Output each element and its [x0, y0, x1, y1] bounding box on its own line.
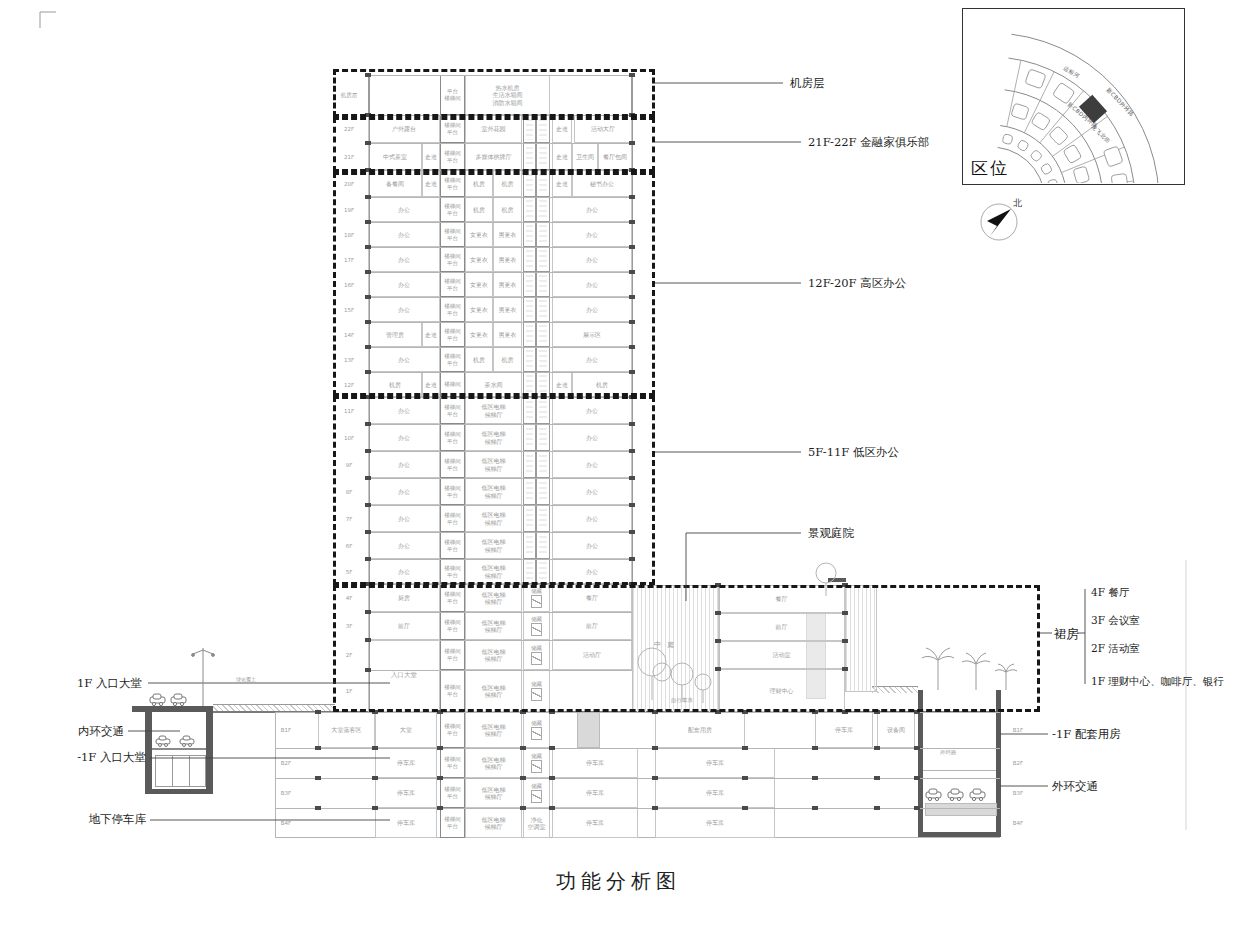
column-tick — [629, 245, 635, 249]
room-cell: 楼梯间 平台 — [440, 297, 465, 322]
room-cell: 走道 — [552, 115, 572, 143]
room-cell: 办公 — [552, 451, 632, 478]
floor-slab-line — [368, 222, 632, 223]
floor-slab-line — [368, 75, 632, 76]
column-tick — [629, 582, 635, 586]
floor-slab-line — [368, 372, 632, 373]
room-cell — [523, 451, 536, 478]
floor-label: 18F — [334, 222, 364, 247]
column-tick — [372, 776, 378, 780]
column-tick — [365, 320, 371, 324]
column-tick — [365, 370, 371, 374]
floor-label: 8F — [334, 478, 364, 505]
room-cell: 低区电梯 候梯厅 — [465, 478, 522, 505]
door-symbol — [531, 760, 542, 773]
room-cell — [523, 322, 536, 347]
road-label: 新CBD外环路 — [1105, 87, 1135, 118]
room-cell: 平台 楼梯间 — [440, 75, 465, 115]
room-cell: 低区电梯 候梯厅 — [465, 397, 522, 424]
outer-ring-bottom — [918, 832, 1001, 837]
inner-ring-right-wall — [206, 712, 213, 794]
room-cell — [523, 272, 536, 297]
room-cell: 停车库 — [552, 748, 638, 778]
floor-slab-line — [368, 478, 632, 479]
room-cell: 楼梯间 平台 — [440, 778, 465, 808]
column-tick — [365, 395, 371, 399]
room-cell: 楼梯间 平台 — [440, 451, 465, 478]
room-cell: 卫生间 — [572, 143, 598, 170]
room-cell: 展示区 — [552, 322, 632, 347]
podium-room: 餐厅 — [718, 585, 845, 613]
floor-label: 13F — [334, 347, 364, 372]
room-cell: 低区电梯 候梯厅 — [465, 505, 522, 532]
room-cell — [523, 532, 536, 559]
room-cell: 储藏 — [523, 640, 550, 670]
room-cell: 走道 — [422, 322, 440, 347]
podium-room: 理财中心 — [718, 669, 845, 712]
column-tick — [372, 710, 378, 714]
room-cell: 餐厅包间 — [598, 143, 632, 170]
column-tick — [629, 345, 635, 349]
column-tick — [629, 530, 635, 534]
map-plot — [1111, 173, 1128, 183]
floor-label: 11F — [334, 397, 364, 424]
annotation-machine-floor: 机房层 — [790, 76, 825, 91]
room-cell: 楼梯间 平台 — [440, 748, 465, 778]
room-cell: 前厅 — [368, 612, 440, 640]
inner-ring-bottom — [145, 789, 213, 794]
column-tick — [629, 168, 635, 172]
column-tick — [914, 710, 920, 714]
room-cell: 女更衣 — [465, 272, 493, 297]
annotation-landscape-courtyard: 景观庭院 — [808, 526, 854, 541]
room-cell: 停车库 — [552, 808, 638, 838]
page-title: 功能分析图 — [556, 868, 681, 895]
column-tick — [365, 668, 371, 672]
room-cell: 茶水间 — [465, 372, 522, 397]
column-tick — [315, 806, 321, 810]
room-cell: 楼梯间 平台 — [440, 397, 465, 424]
room-cell: 男更衣 — [493, 322, 522, 347]
room-cell: 多媒体棋牌厅 — [465, 143, 522, 170]
column-tick — [365, 476, 371, 480]
annotation-outer-ring: 外环交通 — [1052, 779, 1098, 794]
column-tick — [629, 557, 635, 561]
room-cell: 男更衣 — [493, 222, 522, 247]
room-cell: 楼梯间 平台 — [440, 222, 465, 247]
column-tick — [715, 667, 721, 671]
floor-slab-line — [368, 297, 632, 298]
ground-hatch-right — [872, 686, 918, 693]
column-tick — [629, 422, 635, 426]
room-cell: 走道 — [422, 170, 440, 197]
room-cell: 楼梯间 平台 — [440, 808, 465, 838]
room-cell: 热水机房 生活水箱间 消防水箱间 — [465, 75, 550, 115]
column-tick — [812, 776, 818, 780]
column-tick — [742, 776, 748, 780]
entrance-lobby: 入口大堂 — [368, 640, 440, 712]
column-tick — [715, 583, 721, 587]
room-cell — [523, 424, 536, 451]
map-plot — [1073, 166, 1090, 183]
column-tick — [315, 776, 321, 780]
floor-slab-line — [368, 559, 632, 560]
room-cell: 办公 — [552, 532, 632, 559]
column-tick — [520, 710, 526, 714]
room-cell — [523, 222, 536, 247]
annotation-b1-support: -1F 配套用房 — [1052, 727, 1121, 742]
room-cell — [536, 347, 550, 372]
column-tick — [842, 639, 848, 643]
floor-slab-line — [368, 197, 632, 198]
column-tick — [629, 449, 635, 453]
column-tick — [629, 113, 635, 117]
room-cell: 楼梯间 平台 — [440, 712, 465, 748]
floor-slab-line — [368, 424, 632, 425]
room-cell: 办公 — [552, 505, 632, 532]
column-tick — [629, 370, 635, 374]
room-cell: 中式茶室 — [368, 143, 422, 170]
map-plot — [1025, 69, 1046, 89]
room-cell: 楼梯间 平台 — [440, 197, 465, 222]
drawing-label: 自行车库 — [671, 697, 693, 704]
room-cell: 办公 — [368, 347, 440, 372]
floor-label: B4F — [270, 808, 302, 838]
room-cell: 秘书办公 — [572, 170, 632, 197]
room-cell: 楼梯间 — [440, 372, 465, 397]
map-plot — [1031, 112, 1051, 131]
column-tick — [715, 639, 721, 643]
floor-label: B2F — [270, 748, 302, 778]
basement-slab-line — [275, 808, 1000, 809]
column-tick — [842, 611, 848, 615]
room-cell: 楼梯间 平台 — [440, 115, 465, 143]
room-cell — [536, 143, 550, 170]
room-cell: 楼梯间 平台 — [440, 559, 465, 584]
annotation-podium-2f: 2F 活动室 — [1091, 642, 1140, 656]
room-cell: 办公 — [552, 478, 632, 505]
room-cell: 低区电梯 候梯厅 — [465, 559, 522, 584]
room-cell: 停车库 — [815, 712, 873, 748]
column-tick — [437, 710, 443, 714]
door-symbol — [531, 595, 542, 608]
floor-label: B1F — [1002, 712, 1034, 748]
column-tick — [520, 746, 526, 750]
map-plot — [1017, 139, 1029, 151]
column-tick — [629, 195, 635, 199]
basement-slab-line — [275, 778, 1000, 779]
floor-slab-line — [368, 451, 632, 452]
room-cell: 楼梯间 平台 — [440, 584, 465, 612]
room-cell: 大堂落客区 — [318, 712, 375, 748]
roof-railing — [828, 578, 846, 582]
room-cell: 停车库 — [375, 808, 437, 838]
column-tick — [842, 583, 848, 587]
room-cell: 男更衣 — [493, 247, 522, 272]
floor-slab-line — [368, 143, 632, 144]
room-cell: 楼梯间 平台 — [440, 670, 465, 712]
room-cell — [536, 170, 550, 197]
column-tick — [365, 220, 371, 224]
room-cell: 低区电梯 候梯厅 — [465, 532, 522, 559]
annotation-podium: 裙房 — [1054, 626, 1079, 643]
column-tick — [812, 746, 818, 750]
room-cell: 低区电梯 候梯厅 — [465, 451, 522, 478]
column-tick — [365, 195, 371, 199]
map-plot — [1011, 103, 1029, 120]
room-cell — [536, 297, 550, 322]
room-cell: 女更衣 — [465, 297, 493, 322]
inner-ring-left-wall — [145, 712, 152, 794]
room-cell — [523, 115, 536, 143]
column-tick — [437, 746, 443, 750]
column-tick — [715, 611, 721, 615]
drawing-label: 外环路 — [940, 749, 957, 756]
room-cell — [523, 559, 536, 584]
room-cell: 备餐间 — [368, 170, 422, 197]
room-cell: 楼梯间 平台 — [440, 640, 465, 670]
room-cell: 机房 — [572, 372, 632, 397]
column-tick — [437, 776, 443, 780]
room-cell: 机房 — [465, 347, 493, 372]
column-tick — [629, 476, 635, 480]
room-cell — [536, 397, 550, 424]
basement-slab-line — [275, 712, 1000, 713]
column-tick — [629, 320, 635, 324]
column-tick — [742, 746, 748, 750]
door-symbol — [531, 652, 542, 665]
room-cell: 前厅 — [552, 612, 632, 640]
room-cell: 办公 — [368, 397, 440, 424]
floor-slab-line — [368, 532, 632, 533]
floor-label: 1F — [334, 670, 364, 712]
column-tick — [549, 806, 555, 810]
room-cell: 餐厅 — [552, 584, 632, 612]
floor-slab-line — [368, 347, 632, 348]
column-tick — [365, 557, 371, 561]
annotation-low-office: 5F-11F 低区办公 — [808, 445, 899, 460]
floor-label: 机房层 — [334, 75, 364, 115]
room-cell: 楼梯间 平台 — [440, 478, 465, 505]
floor-label: 22F — [334, 115, 364, 143]
room-cell — [536, 532, 550, 559]
floor-label: 17F — [334, 247, 364, 272]
room-cell: 户外露台 — [368, 115, 440, 143]
podium-room: 活动室 — [718, 641, 845, 669]
room-cell: 活动厅 — [552, 640, 632, 670]
room-cell: 楼梯间 平台 — [440, 272, 465, 297]
column-tick — [365, 345, 371, 349]
room-cell — [523, 372, 536, 397]
room-cell: 停车库 — [375, 748, 437, 778]
map-plot — [1052, 82, 1074, 104]
room-cell: 低区电梯 候梯厅 — [465, 584, 522, 612]
floor-label: 6F — [334, 532, 364, 559]
annotation-entry-b1: -1F 入口大堂 — [77, 750, 146, 765]
column-tick — [372, 746, 378, 750]
floor-label: 12F — [334, 372, 364, 397]
room-cell: 楼梯间 平台 — [440, 347, 465, 372]
room-cell: 低区电梯 候梯厅 — [465, 670, 522, 712]
outer-ring-slab1 — [923, 770, 996, 771]
room-cell: 储藏 — [523, 712, 550, 748]
floor-slab-line — [368, 612, 632, 613]
floor-label: B3F — [270, 778, 302, 808]
floor-slab-line — [368, 247, 632, 248]
room-cell: 女更衣 — [465, 247, 493, 272]
column-tick — [365, 530, 371, 534]
room-cell: 净化 空调室 — [523, 808, 550, 838]
room-cell: 楼梯间 平台 — [440, 532, 465, 559]
map-title: 区位 — [971, 157, 1009, 180]
floor-label: 5F — [334, 559, 364, 584]
room-cell: 办公 — [368, 451, 440, 478]
room-cell — [536, 505, 550, 532]
room-cell: 楼梯间 平台 — [440, 424, 465, 451]
room-cell: 停车库 — [375, 778, 437, 808]
room-cell: 办公 — [552, 297, 632, 322]
column-tick — [365, 141, 371, 145]
room-cell: 走道 — [422, 372, 440, 397]
column-tick — [629, 141, 635, 145]
room-cell: 男更衣 — [493, 297, 522, 322]
annotation-club: 21F-22F 金融家俱乐部 — [808, 135, 929, 150]
floor-label: 19F — [334, 197, 364, 222]
door-symbol — [531, 623, 542, 636]
room-cell: 楼梯间 平台 — [440, 322, 465, 347]
column-tick — [365, 270, 371, 274]
column-tick — [842, 667, 848, 671]
inner-ring-cell — [189, 755, 206, 787]
room-cell — [536, 322, 550, 347]
room-cell: 办公 — [552, 397, 632, 424]
room-cell: 停车库 — [655, 778, 775, 808]
room-cell: 走道 — [552, 372, 572, 397]
floor-label: B4F — [1002, 808, 1034, 838]
column-tick — [629, 73, 635, 77]
room-cell: 室外花园 — [465, 115, 522, 143]
room-cell — [536, 197, 550, 222]
room-cell: 机房 — [465, 170, 493, 197]
room-cell: 女更衣 — [465, 322, 493, 347]
column-tick — [315, 710, 321, 714]
room-cell — [536, 451, 550, 478]
floor-label: 14F — [334, 322, 364, 347]
floor-label: 9F — [334, 451, 364, 478]
floor-slab-line — [368, 397, 632, 398]
room-cell — [536, 424, 550, 451]
room-cell — [523, 397, 536, 424]
column-tick — [812, 710, 818, 714]
column-tick — [874, 746, 880, 750]
room-cell — [536, 247, 550, 272]
room-cell: 办公 — [368, 222, 440, 247]
room-cell — [536, 478, 550, 505]
room-cell: 办公 — [368, 532, 440, 559]
room-cell: 楼梯间 平台 — [440, 505, 465, 532]
podium-glass-zone — [845, 585, 877, 692]
room-cell: 办公 — [368, 197, 440, 222]
room-cell — [536, 272, 550, 297]
floor-label: 4F — [334, 584, 364, 612]
column-tick — [874, 806, 880, 810]
map-plot — [1002, 134, 1013, 145]
map-plot — [1030, 149, 1043, 162]
floor-label: B2F — [1002, 748, 1034, 778]
column-tick — [365, 610, 371, 614]
column-tick — [629, 220, 635, 224]
room-cell: 低区电梯 候梯厅 — [465, 712, 522, 748]
column-tick — [652, 806, 658, 810]
annotation-podium-4f: 4F 餐厅 — [1091, 586, 1129, 600]
room-cell: 办公 — [552, 424, 632, 451]
drawing-label: 中 庭 — [654, 640, 676, 650]
column-tick — [914, 806, 920, 810]
room-cell: 储藏 — [523, 670, 550, 712]
room-cell: 停车库 — [655, 808, 775, 838]
column-tick — [365, 503, 371, 507]
column-tick — [629, 295, 635, 299]
column-tick — [629, 503, 635, 507]
room-cell: 低区电梯 候梯厅 — [465, 808, 522, 838]
outer-ring-base — [925, 803, 997, 816]
column-tick — [629, 395, 635, 399]
room-cell — [577, 712, 600, 748]
room-cell: 大堂 — [375, 712, 437, 748]
room-cell: 楼梯间 平台 — [440, 612, 465, 640]
column-tick — [742, 710, 748, 714]
room-cell — [523, 297, 536, 322]
floor-slab-line — [368, 322, 632, 323]
floor-label: 16F — [334, 272, 364, 297]
room-cell — [523, 347, 536, 372]
room-cell: 办公 — [368, 297, 440, 322]
column-tick — [520, 806, 526, 810]
column-tick — [874, 710, 880, 714]
annotation-podium-3f: 3F 会议室 — [1091, 614, 1140, 628]
column-tick — [365, 113, 371, 117]
room-cell: 管理房 — [368, 322, 422, 347]
room-cell: 办公 — [368, 478, 440, 505]
room-cell: 办公 — [368, 505, 440, 532]
inner-ring-road-slab — [152, 748, 206, 750]
road-label: 龙飞北街 — [1090, 123, 1112, 145]
floor-label: 7F — [334, 505, 364, 532]
floor-label: B3F — [1002, 778, 1034, 808]
inner-ring-cell — [172, 755, 190, 787]
annotation-high-office: 12F-20F 高区办公 — [808, 276, 906, 291]
floor-label: 3F — [334, 612, 364, 640]
column-tick — [742, 806, 748, 810]
room-cell: 停车库 — [655, 748, 775, 778]
column-tick — [365, 638, 371, 642]
map-plot — [1063, 144, 1082, 163]
room-cell: 低区电梯 候梯厅 — [465, 778, 522, 808]
room-cell: 办公 — [368, 424, 440, 451]
room-cell: 办公 — [552, 559, 632, 584]
drawing-label: 绿化覆土 — [236, 676, 256, 682]
column-tick — [549, 776, 555, 780]
column-tick — [715, 710, 721, 714]
column-tick — [315, 746, 321, 750]
floor-slab-line — [368, 584, 632, 585]
inner-ring-cell — [155, 755, 173, 787]
column-tick — [549, 746, 555, 750]
room-cell — [523, 247, 536, 272]
map-plot — [1040, 163, 1052, 175]
room-cell: 走道 — [422, 143, 440, 170]
room-cell: 配套用房 — [655, 712, 745, 748]
